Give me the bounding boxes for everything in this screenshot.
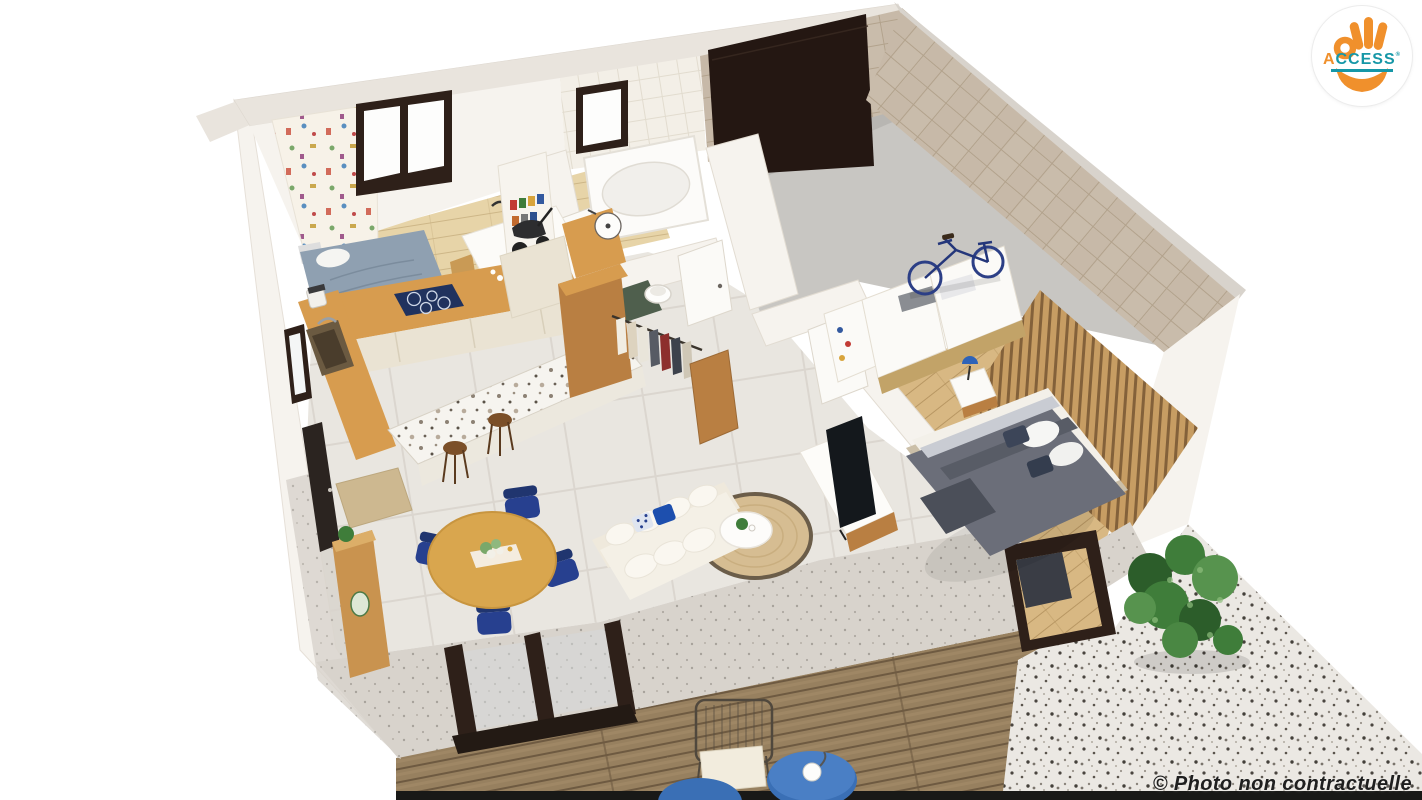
logo-underline [1331,69,1393,72]
coffee-table [720,512,772,548]
watermark-text: © Photo non contractuelle [1153,773,1412,796]
wc-door [678,240,732,326]
kids-room-window [356,90,452,196]
floorplan-render: ACCESS® © Photo non contractuelle [0,0,1422,800]
coffee-machine [306,284,327,309]
sideboard-plant [338,526,354,542]
decor-plate [351,592,369,616]
floorplan-scene [0,0,1422,800]
access-logo-text: ACCESS® [1312,52,1412,68]
access-logo: ACCESS® [1312,6,1412,106]
bathroom-window [576,80,628,154]
